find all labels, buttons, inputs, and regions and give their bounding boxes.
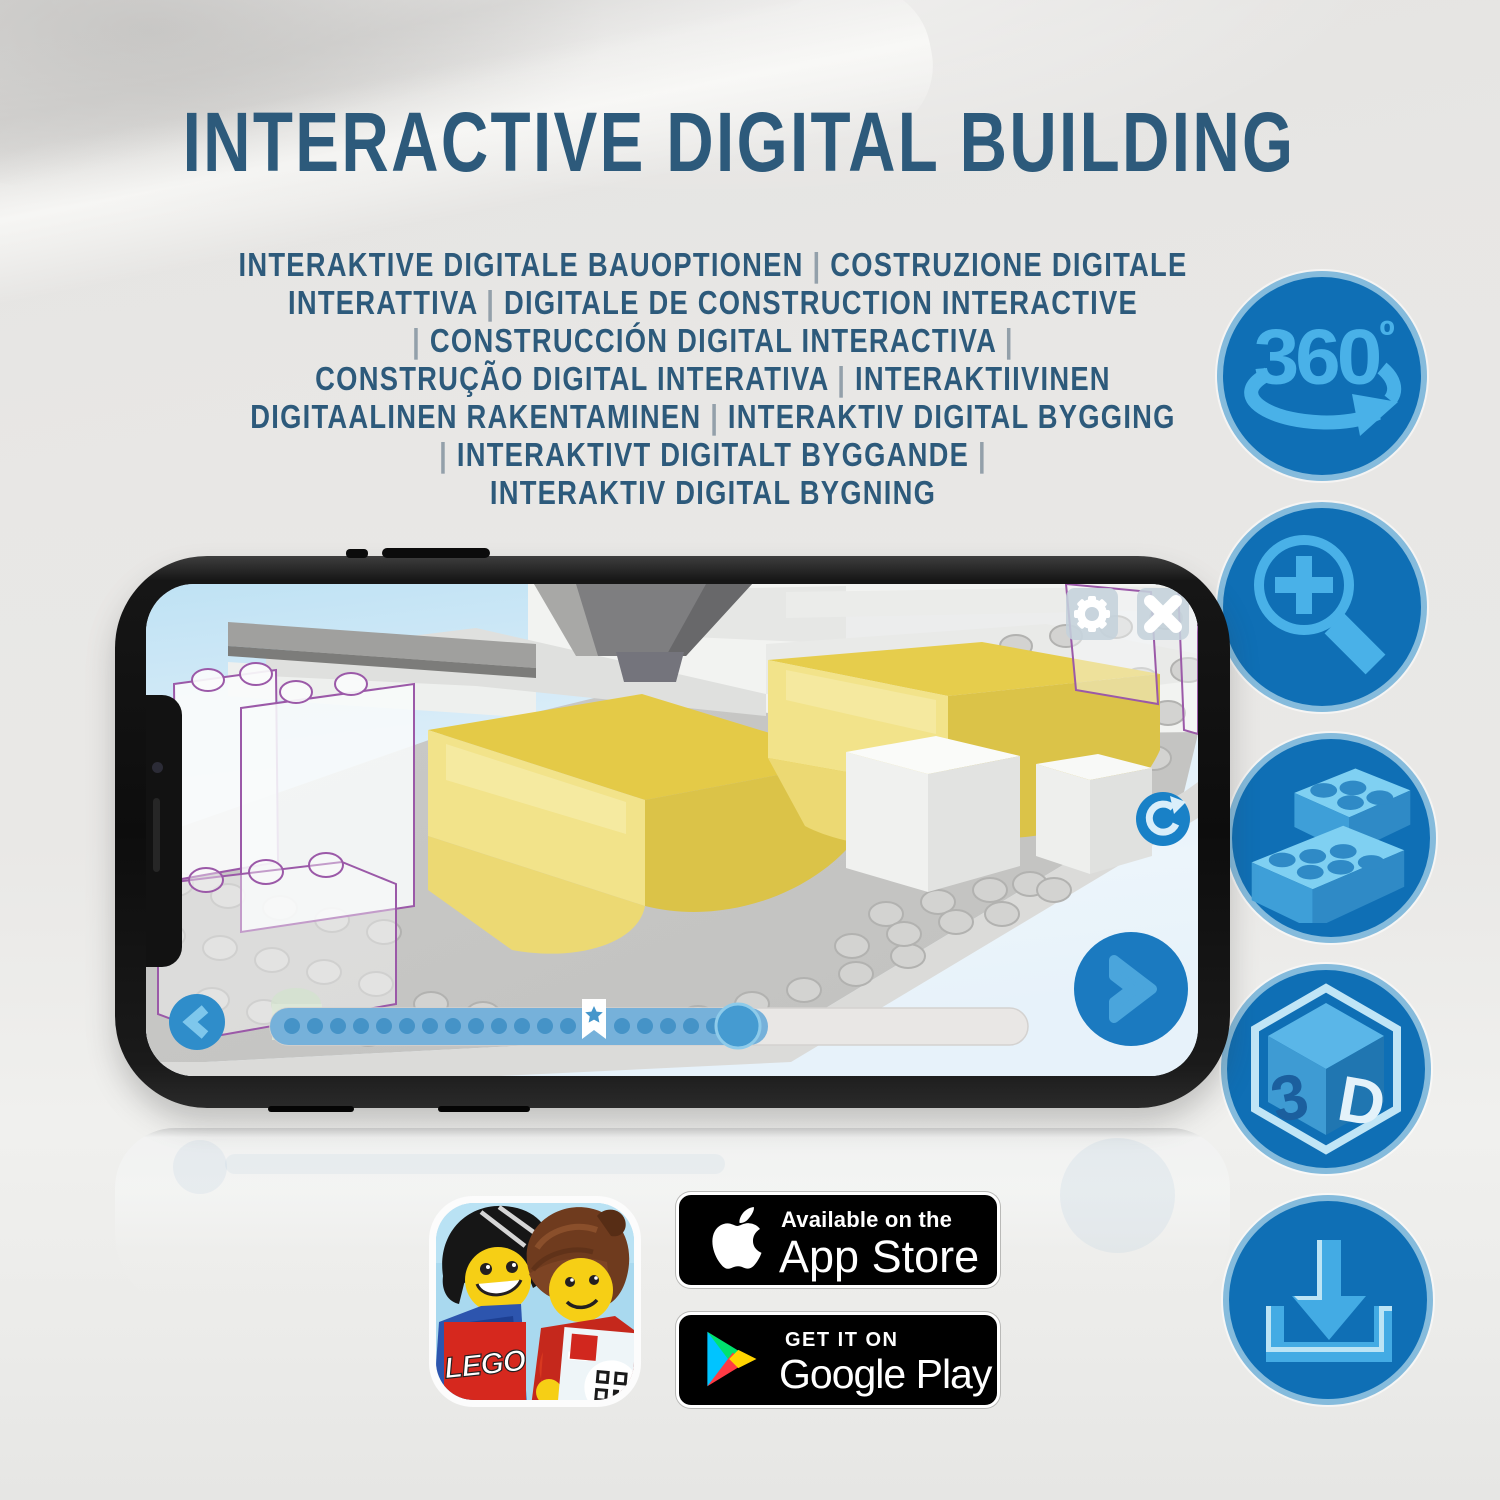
svg-text:360: 360 (1254, 313, 1380, 400)
svg-text:º: º (1379, 312, 1394, 359)
